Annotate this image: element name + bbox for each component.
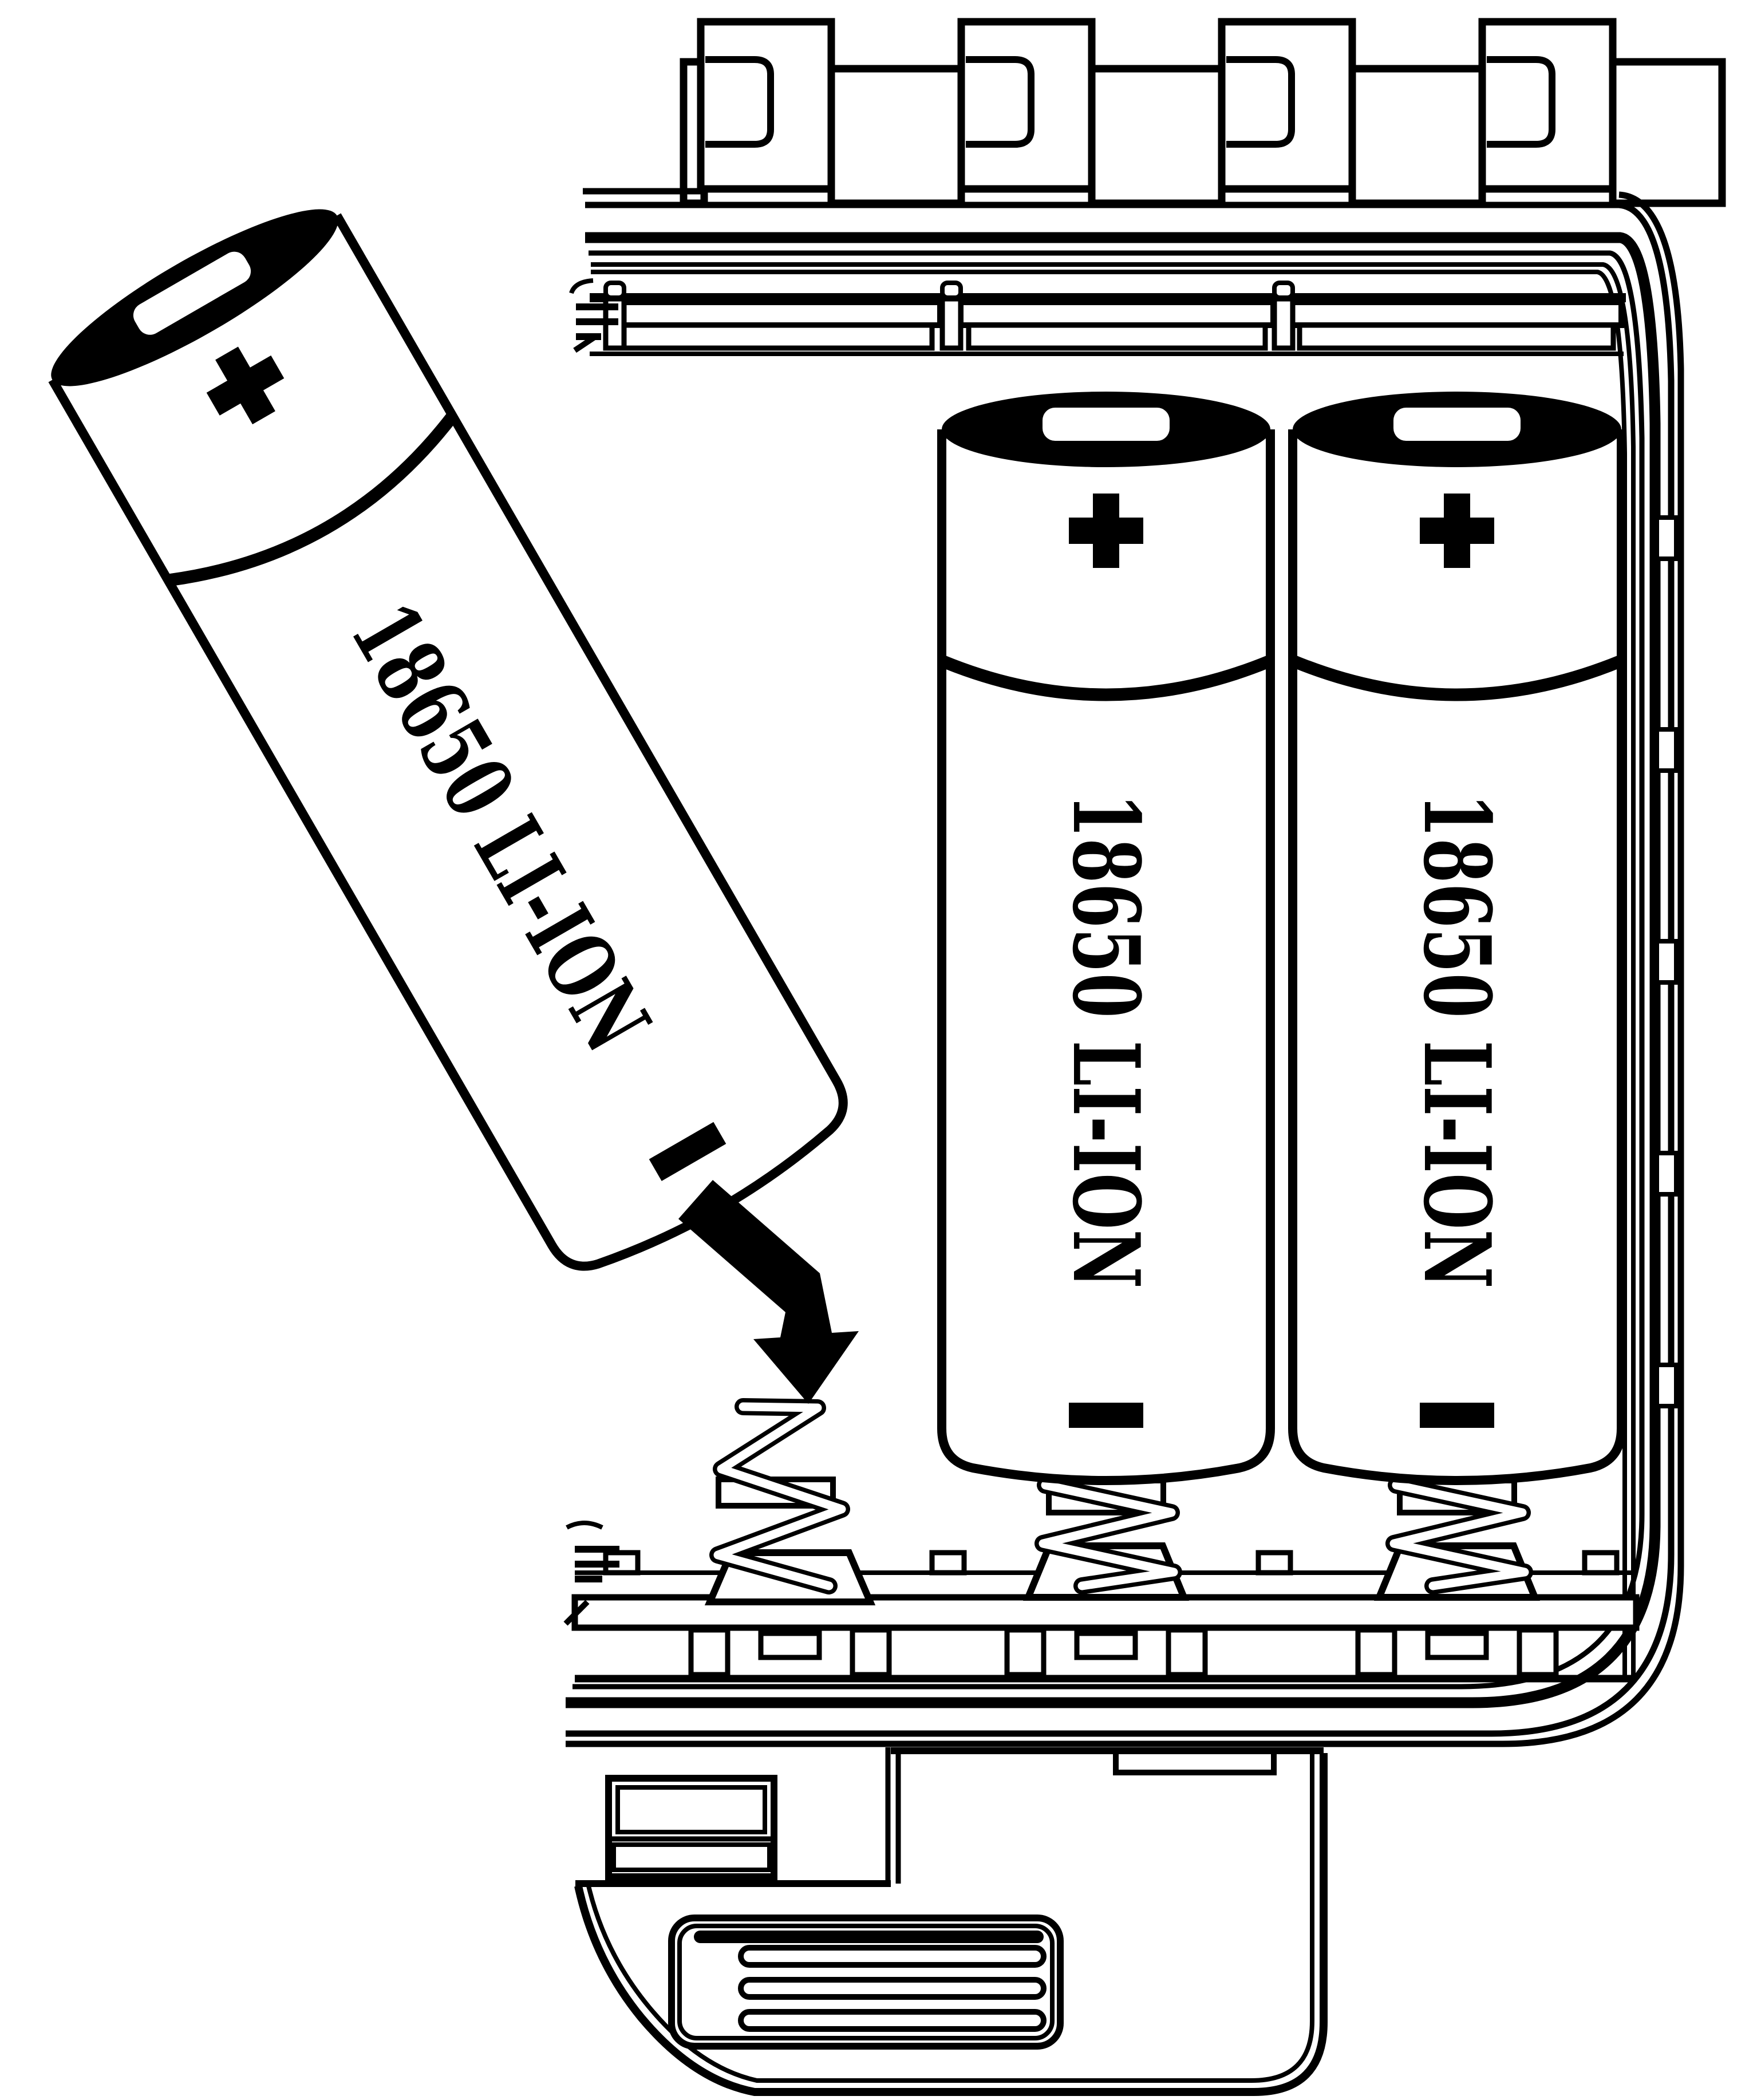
- hinge-lower-tooth: [1092, 69, 1222, 203]
- hinge-upper-tooth: [701, 22, 831, 189]
- grip-ridge: [741, 2012, 1044, 2029]
- plate-tab: [932, 1553, 964, 1573]
- grip-ridge: [741, 1980, 1044, 1997]
- hinge-teeth: [684, 22, 1722, 203]
- hinge-upper-tooth: [1222, 22, 1352, 189]
- hinge-lower-tooth: [1613, 62, 1722, 203]
- hinge-lower-tooth: [1352, 69, 1482, 203]
- insertion-arrow-icon: [678, 1180, 859, 1404]
- plate-tab: [1585, 1553, 1617, 1573]
- battery-label: 18650 LI-ION: [1052, 794, 1160, 1289]
- battery-installed-right: 18650 LI-ION: [1293, 392, 1621, 1481]
- spring-empty-slot: [710, 1407, 870, 1602]
- contact-plate: [961, 302, 1273, 325]
- top-contact-strip: [571, 281, 1626, 354]
- hinge-lower-tooth: [831, 69, 961, 203]
- battery-installed-left: 18650 LI-ION: [942, 392, 1270, 1481]
- grip-ridge: [741, 1948, 1044, 1965]
- battery-door-latch: [575, 1747, 1324, 2092]
- wall-clip: [1657, 518, 1676, 559]
- hinge-upper-tooth: [961, 22, 1092, 189]
- battery-installation-diagram: 18650 LI-ION 18650 LI-ION 18650 LI-ION: [0, 0, 1761, 2100]
- latch-catch: [609, 1778, 774, 1877]
- contact-plate: [1292, 302, 1621, 325]
- wall-clip: [1657, 941, 1676, 982]
- wall-clip: [1657, 729, 1676, 771]
- grip-pad[interactable]: [672, 1918, 1060, 2046]
- spring-left-battery: [1028, 1481, 1184, 1597]
- hinge-upper-tooth: [1482, 22, 1613, 189]
- diagram-canvas: 18650 LI-ION 18650 LI-ION 18650 LI-ION: [0, 0, 1761, 2100]
- slot-divider-pin: [942, 283, 961, 348]
- battery-label: 18650 LI-ION: [1403, 794, 1511, 1289]
- plate-feet: [691, 1630, 1556, 1675]
- contact-plate: [616, 302, 940, 325]
- contact-plate-lower: [624, 325, 932, 348]
- spring-right-battery: [1379, 1481, 1535, 1597]
- slot-divider-pin: [1274, 283, 1293, 348]
- contact-plate-lower: [969, 325, 1265, 348]
- wall-clip: [1657, 1153, 1676, 1194]
- slot-divider-pin: [606, 283, 624, 348]
- plate-tab: [1258, 1553, 1290, 1573]
- wall-clip: [1657, 1365, 1676, 1406]
- grip-ridge-solid: [694, 1931, 1044, 1943]
- contact-plate-lower: [1300, 325, 1613, 348]
